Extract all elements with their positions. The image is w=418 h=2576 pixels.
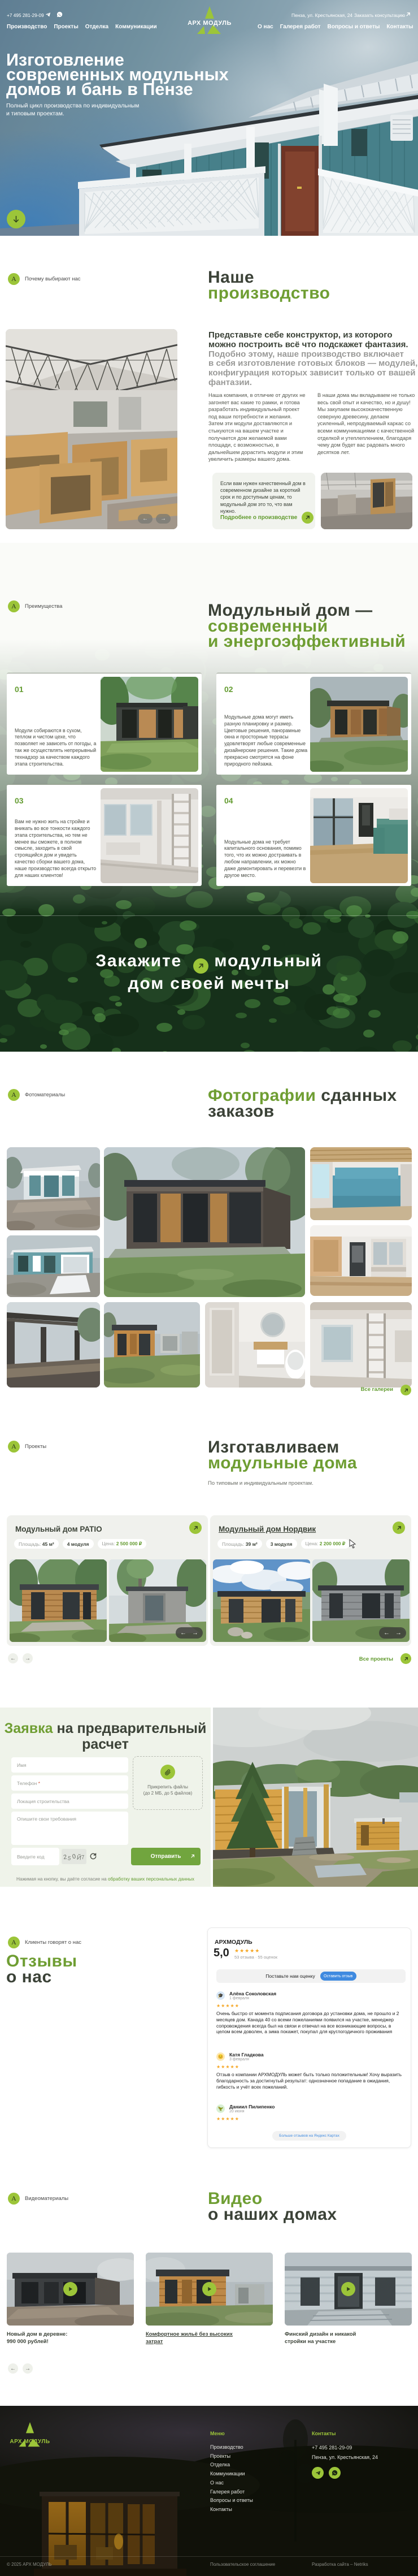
svg-text:2: 2: [63, 1854, 67, 1861]
svg-text:0: 0: [72, 1853, 76, 1860]
svg-text:7: 7: [81, 1855, 85, 1861]
svg-text:5: 5: [67, 1856, 72, 1862]
